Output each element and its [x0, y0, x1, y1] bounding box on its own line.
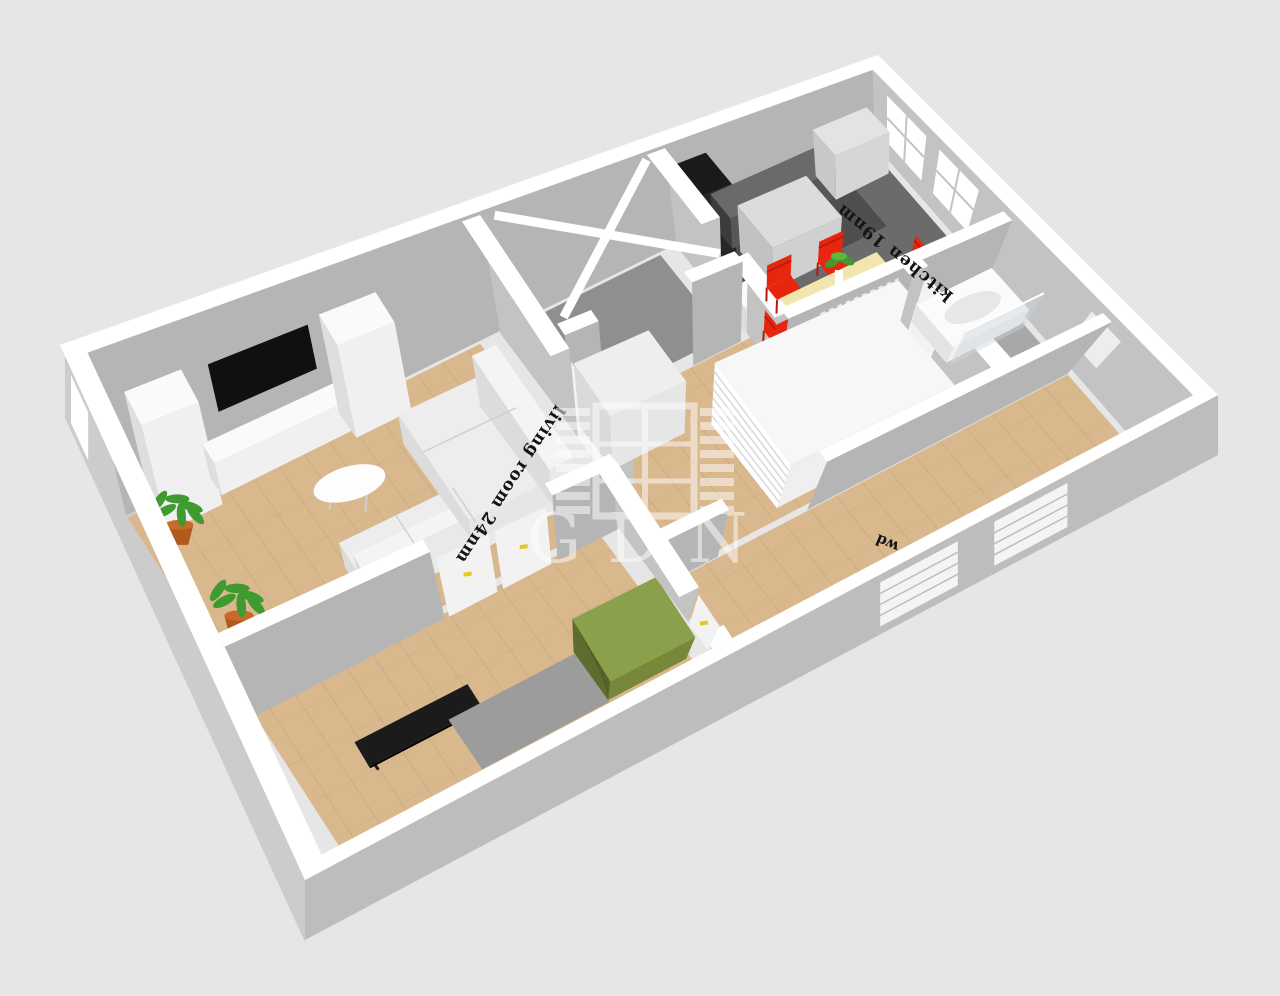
chair-leg	[777, 300, 778, 313]
plant-leaves	[224, 584, 249, 593]
scene-geometry	[60, 55, 1218, 942]
floorplan-3d-render: living room 24nm kitchen 19nm wd	[0, 0, 1280, 996]
watermark-text: GDN	[527, 500, 773, 579]
vase-plant	[831, 252, 847, 260]
plant-leaves	[165, 494, 189, 503]
chair-leg	[817, 263, 818, 276]
floorplan-canvas: living room 24nm kitchen 19nm wd	[0, 0, 1280, 996]
